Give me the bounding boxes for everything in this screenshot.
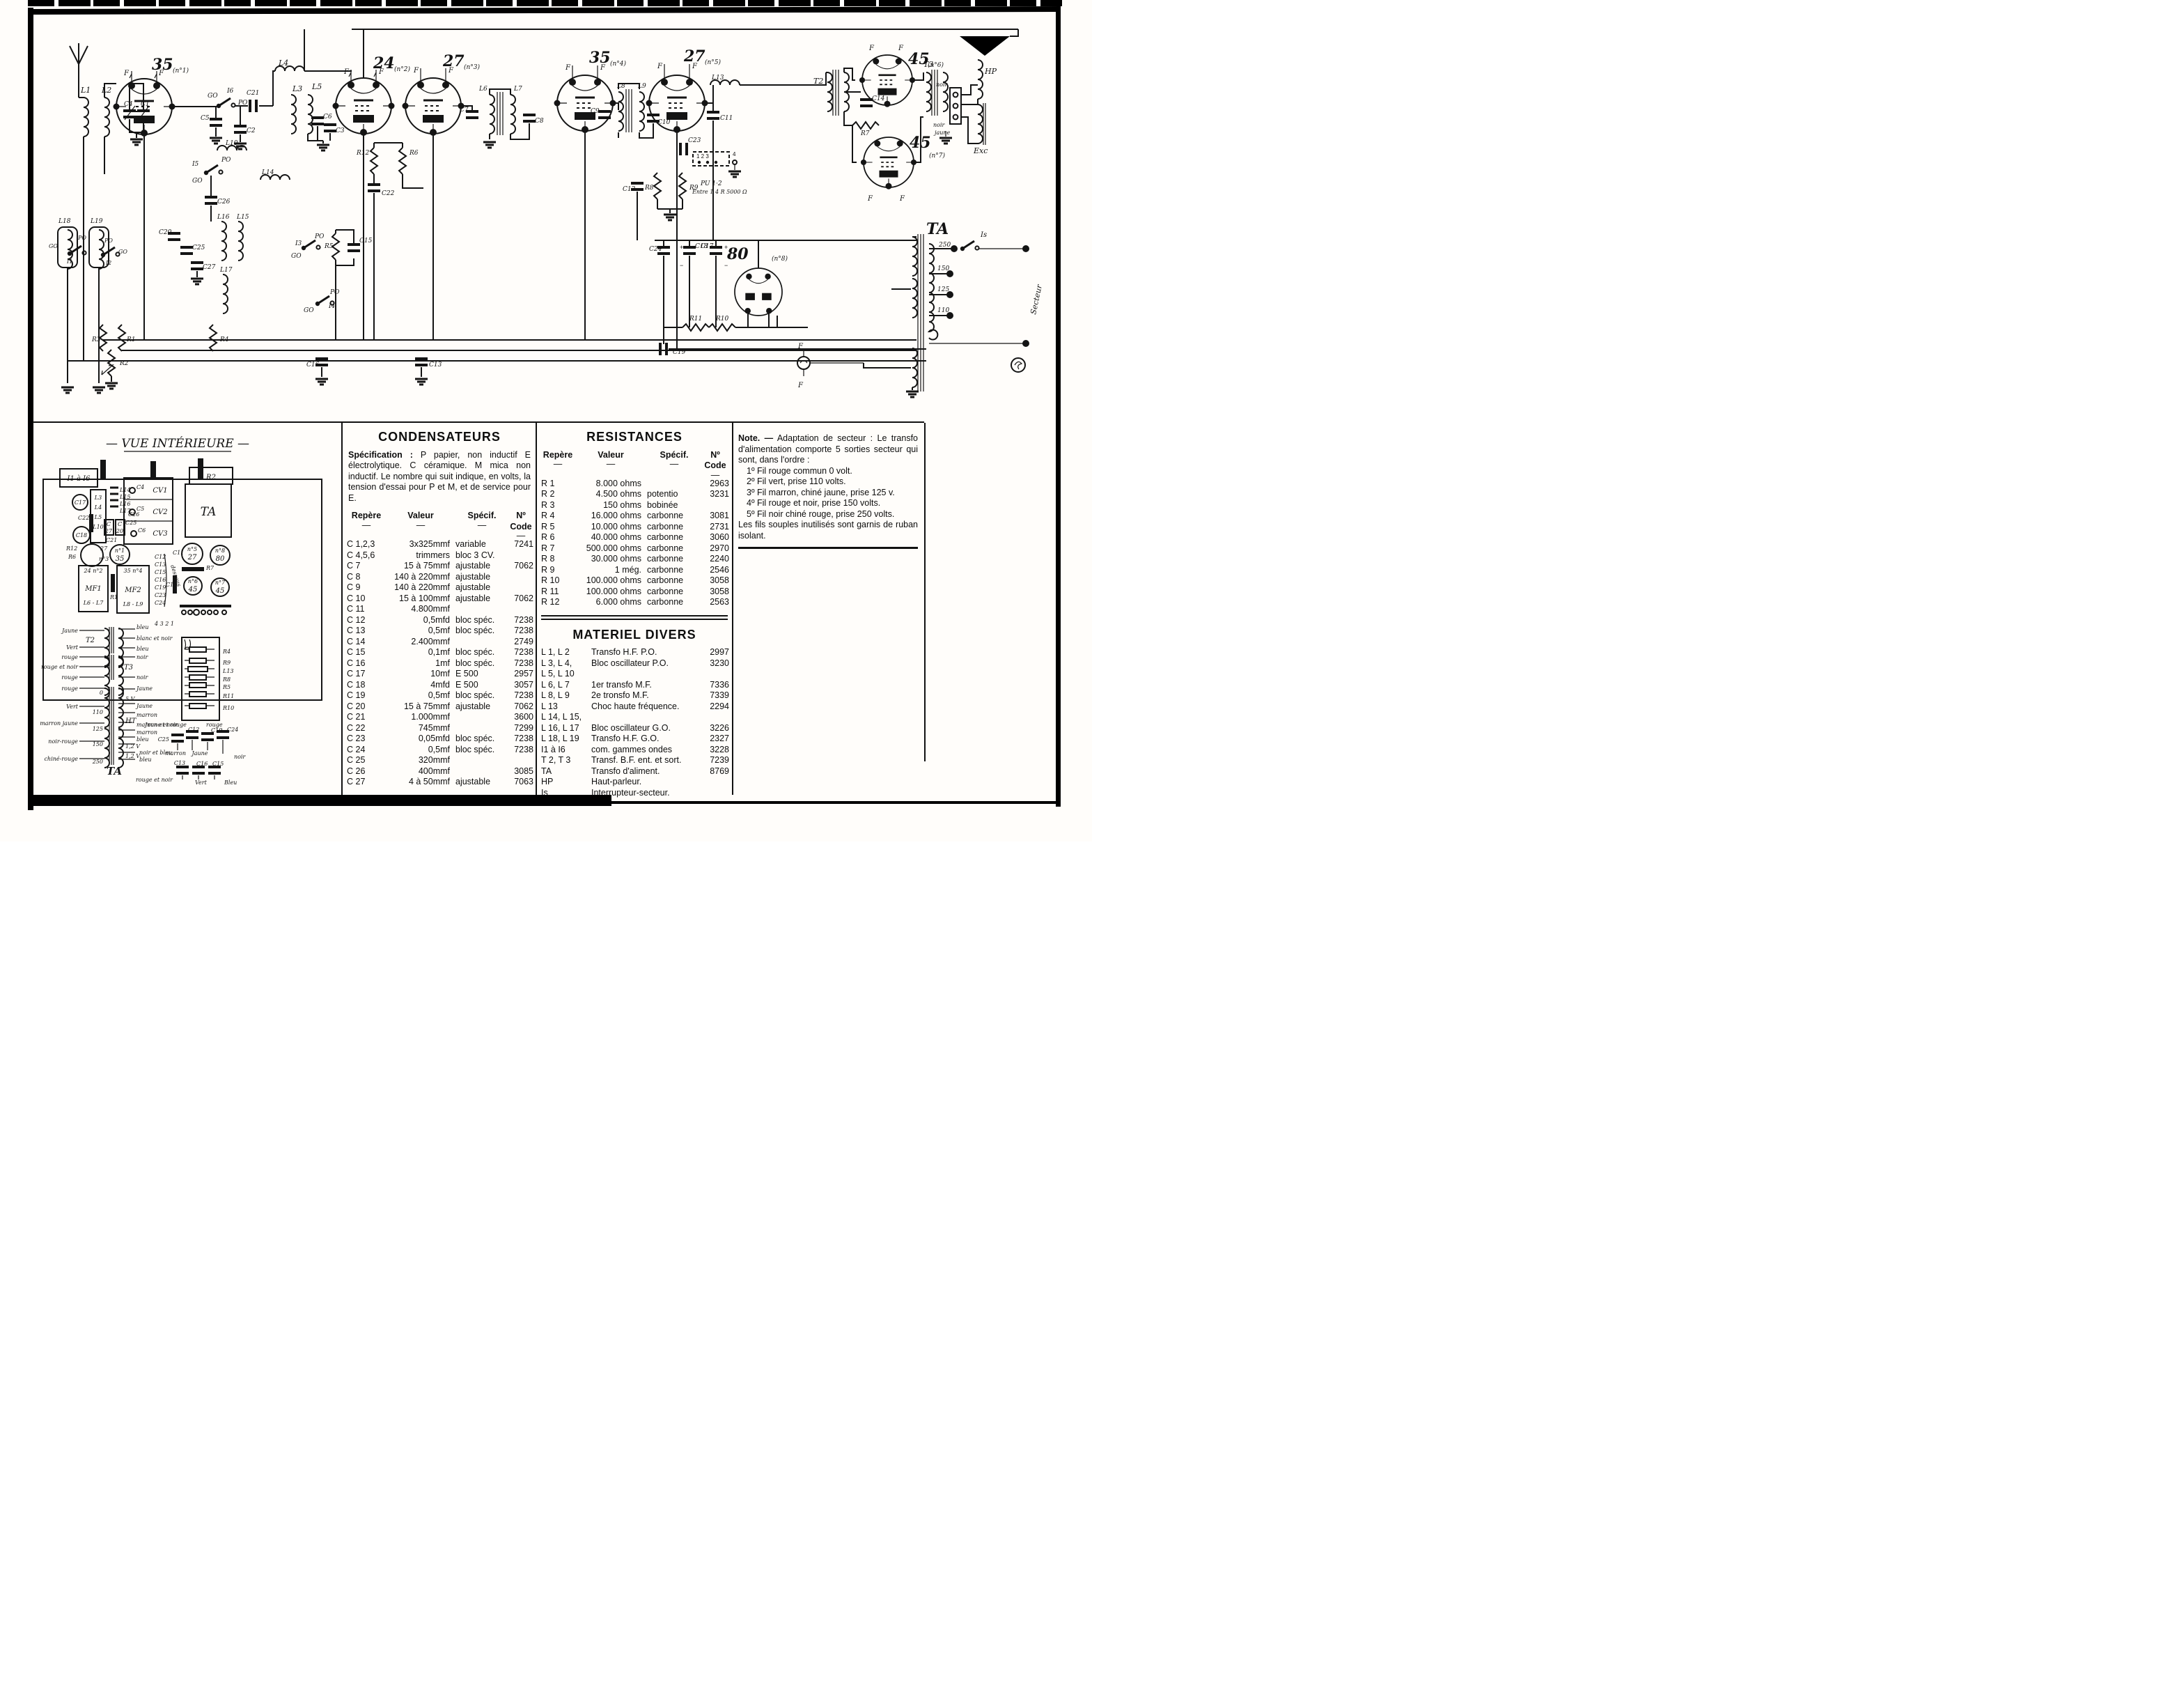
MF2-coils: L8 - L9 xyxy=(123,601,143,607)
switch-I3 xyxy=(302,240,320,250)
materiel-title: MATERIEL DIVERS xyxy=(541,630,728,641)
table-cell: Transf. B.F. ent. et sort. xyxy=(591,755,701,766)
table-cell: carbonne xyxy=(647,587,701,598)
table-row: T 2, T 3Transf. B.F. ent. et sort.7239 xyxy=(541,755,728,766)
table-cell: 7239 xyxy=(701,755,729,766)
table-cell: bloc spéc. xyxy=(455,626,508,637)
board-R10: R10 xyxy=(222,705,234,711)
note-item-3: 3º Fil marron, chiné jaune, prise 125 v. xyxy=(738,488,918,499)
column-divider-1 xyxy=(341,423,343,795)
ground xyxy=(210,138,222,144)
table-cell: carbonne xyxy=(647,543,701,554)
resistor-R9-label: R9 xyxy=(689,185,699,192)
table-cell: bloc spéc. xyxy=(455,615,508,626)
L5-label: L5 xyxy=(94,514,102,520)
coil-L10-label: L10 xyxy=(225,140,238,147)
table-cell xyxy=(591,712,701,723)
cap-C11 xyxy=(707,111,719,120)
switch-I1-label: I1 xyxy=(66,258,72,265)
cap-C3-label: C3 xyxy=(336,127,345,134)
cap-C19 xyxy=(659,343,668,355)
table-cell: 3081 xyxy=(701,511,729,522)
tap-150: 150 xyxy=(93,741,103,747)
spec-bold: Spécification : xyxy=(348,450,413,460)
condensateurs-panel: CONDENSATEURS Spécification : P papier, … xyxy=(347,428,532,788)
filament-label: F xyxy=(378,68,384,76)
header-dash: — xyxy=(508,532,533,539)
transformer-T3-primary xyxy=(926,72,931,111)
TA-big-label: TA xyxy=(107,765,122,777)
wire-marron-jaune: marron jaune xyxy=(40,720,78,727)
table-cell: 3231 xyxy=(701,489,729,500)
table-row: C 25320mmf xyxy=(347,755,532,766)
table-cell: 3060 xyxy=(701,532,729,543)
header-dash: — xyxy=(647,460,701,467)
table-row: L 3, L 4,Bloc oscillateur P.O.3230 xyxy=(541,658,728,669)
R6-label: R6 xyxy=(68,554,76,560)
cap-C8-label: C8 xyxy=(535,118,544,125)
filament-label: F xyxy=(797,382,804,389)
coil-L14-label: L14 xyxy=(261,169,274,176)
table-cell: 3228 xyxy=(701,745,729,756)
table-cell: 0,5mfd xyxy=(386,615,455,626)
table-cell: 320mmf xyxy=(386,755,455,766)
table-cell: R 3 xyxy=(541,500,575,511)
C22-label: C22 xyxy=(78,515,89,521)
header-code: Nº Code xyxy=(701,450,729,472)
wire-bleu: bleu xyxy=(136,646,149,652)
board-R9: R9 xyxy=(222,660,231,666)
board-L13: L13 xyxy=(222,668,234,674)
ground xyxy=(130,139,143,145)
table-cell: 3057 xyxy=(508,680,533,691)
note-dash: — xyxy=(765,433,774,443)
table-cell: ajustable xyxy=(455,572,508,583)
cap-C5-label: C5 xyxy=(201,115,210,122)
table-cell: C 8 xyxy=(347,572,386,583)
table-cell: 10.000 ohms xyxy=(575,522,647,533)
table-row: R 10100.000 ohmscarbonne3058 xyxy=(541,575,728,587)
tap-0: 0 xyxy=(100,690,103,696)
table-cell: Transfo H.F. P.O. xyxy=(591,647,701,658)
table-cell: 3230 xyxy=(701,658,729,669)
table-cell: carbonne xyxy=(647,575,701,587)
note-rule xyxy=(738,547,918,549)
table-row: R 640.000 ohmscarbonne3060 xyxy=(541,532,728,543)
cap-C27 xyxy=(191,261,203,270)
cap-C3 xyxy=(324,123,336,132)
note-item-2: 2º Fil vert, prise 110 volts. xyxy=(738,476,918,488)
transformer-T2-primary xyxy=(827,72,832,111)
switch-I6-label: I6 xyxy=(226,88,234,95)
table-cell: I1 à I6 xyxy=(541,745,591,756)
transformer-TA-label: TA xyxy=(926,220,949,238)
table-cell: Is xyxy=(541,788,591,799)
wire-jaune-et-rouge: Jaune et rouge xyxy=(143,722,187,728)
R7-label: R7 xyxy=(205,565,214,571)
speaker-cone-icon xyxy=(960,36,1010,56)
table-cell xyxy=(508,582,533,594)
po-label: PO xyxy=(314,233,325,240)
wire-noir-label: noir xyxy=(936,82,949,88)
table-cell xyxy=(508,550,533,561)
socket-n6-type: 45 xyxy=(188,586,198,594)
filament-label: F xyxy=(600,64,606,72)
switch-bank-label: I1 à I6 xyxy=(67,475,91,483)
filament-label: F xyxy=(868,45,875,52)
tube-27-n3-label: 27 xyxy=(442,52,465,70)
table-cell: 1 még. xyxy=(575,565,647,576)
MF1-tube-tag: 24 n°2 xyxy=(84,568,103,574)
table-row: C 274 à 50mmfajustable7063 xyxy=(347,777,532,788)
wire-bleu: bleu xyxy=(136,736,149,743)
table-cell: 7336 xyxy=(701,680,729,691)
ground xyxy=(483,142,496,148)
table-cell: C 18 xyxy=(347,680,386,691)
table-cell: R 10 xyxy=(541,575,575,587)
section-divider xyxy=(541,615,728,620)
cap-C13-label: C13 xyxy=(174,760,185,766)
table-cell: C 23 xyxy=(347,734,386,745)
socket-n3-type: 27 xyxy=(100,545,108,552)
table-cell: 2546 xyxy=(701,565,729,576)
table-cell: com. gammes ondes xyxy=(591,745,701,756)
go-label: GO xyxy=(192,178,203,185)
tap-1-2v: 1,2 V xyxy=(125,753,141,759)
cap-C26 xyxy=(205,196,217,205)
wire-rouge: rouge xyxy=(61,654,78,660)
table-cell: 150 ohms xyxy=(575,500,647,511)
po-label: PO xyxy=(329,289,340,296)
cap-C22-label: C22 xyxy=(382,190,395,197)
table-cell: C 1,2,3 xyxy=(347,539,386,550)
coil-L19-label: L19 xyxy=(90,218,103,225)
cap-C16-label: C16 xyxy=(306,362,320,369)
table-cell xyxy=(701,788,729,799)
table-row: C 1710mfE 5002957 xyxy=(347,669,532,680)
coil-L8 xyxy=(618,92,623,131)
table-cell: L 3, L 4, xyxy=(541,658,591,669)
table-row: C 120,5mfdbloc spéc.7238 xyxy=(347,615,532,626)
table-cell: 2963 xyxy=(701,479,729,490)
table-row: C 114.800mmf xyxy=(347,604,532,615)
wire-blanc-et-noir: blanc et noir xyxy=(136,635,173,642)
cap-C13 xyxy=(415,357,428,366)
switch-I5-label: I5 xyxy=(192,161,199,168)
tap-250-label: 250 xyxy=(938,242,951,249)
table-row: C 240,5mfbloc spéc.7238 xyxy=(347,745,532,756)
materiel-rows: L 1, L 2Transfo H.F. P.O.2997L 3, L 4,Bl… xyxy=(541,647,728,798)
table-cell: C 4,5,6 xyxy=(347,550,386,561)
po-label: PO xyxy=(104,238,113,244)
table-cell: 7062 xyxy=(508,594,533,605)
table-row: C 22745mmf7299 xyxy=(347,723,532,734)
table-cell: 0,1mf xyxy=(386,647,455,658)
L10-label: L10 xyxy=(92,524,104,530)
transformer-T2-label: T2 xyxy=(813,77,823,86)
table-cell: 4 à 50mmf xyxy=(386,777,455,788)
ground xyxy=(906,391,919,397)
wire-vert: Vert xyxy=(66,644,79,651)
cap-C19-label: C19 xyxy=(211,727,222,734)
tube-80-n8-label: 80 xyxy=(726,245,749,263)
table-cell: HP xyxy=(541,777,591,788)
cap-C11-label: C11 xyxy=(720,115,733,122)
table-cell: R 7 xyxy=(541,543,575,554)
wire-rouge: rouge xyxy=(61,685,78,692)
switch-Is xyxy=(960,241,979,251)
filament-label: F xyxy=(448,67,454,75)
table-cell: R 12 xyxy=(541,597,575,608)
chassis-top-view: — VUE INTÉRIEURE — I1 à I6 R2 TA CV1 CV2… xyxy=(33,423,341,796)
table-cell: 4.800mmf xyxy=(386,604,455,615)
table-cell: 8769 xyxy=(701,766,729,777)
pu-contact4-label: 4 xyxy=(733,151,736,157)
cap-C23 xyxy=(679,143,688,155)
wire-bleu: bleu xyxy=(136,624,149,630)
resistor-R12 xyxy=(370,148,377,174)
table-row: R 91 még.carbonne2546 xyxy=(541,565,728,576)
tube-24-n2-num: (n°2) xyxy=(394,65,411,73)
frame-bottom-thin xyxy=(611,801,1061,804)
cap-C26-label: C26 xyxy=(217,199,231,205)
wire-marron: marron xyxy=(165,750,186,757)
resistor-R6 xyxy=(399,148,406,174)
cap-C21 xyxy=(249,100,258,112)
ground xyxy=(93,387,105,393)
cap-C20-label: C20 xyxy=(159,229,172,236)
TA-secondary-coil2 xyxy=(118,729,123,768)
cap-C18 xyxy=(683,246,696,255)
cap-C16-label: C16 xyxy=(196,761,208,767)
note-outro: Les fils souples inutilisés sont garnis … xyxy=(738,520,918,541)
table-cell: 2731 xyxy=(701,522,729,533)
table-cell xyxy=(591,669,701,680)
ground xyxy=(317,145,329,150)
ground xyxy=(939,138,952,144)
cap-C25-label: C25 xyxy=(158,736,169,743)
table-cell: 2294 xyxy=(701,701,729,713)
table-cell: L 13 xyxy=(541,701,591,713)
table-row: C 9140 à 220mmfajustable xyxy=(347,582,532,594)
circuit-schematic: L1 L2 C4 C1 35 (n°1) F F GO I6 PO C21 C5… xyxy=(0,0,1092,421)
cap-C15-label: C15 xyxy=(359,238,373,245)
wire-jaune-label: jaune xyxy=(933,130,951,136)
table-cell: R 11 xyxy=(541,587,575,598)
MF2-tube-tag: 35 n°4 xyxy=(124,568,143,574)
wire-rouge: rouge xyxy=(61,674,78,681)
table-cell: 3600 xyxy=(508,712,533,723)
resistances-rows: R 18.000 ohms2963R 24.500 ohmspotentio32… xyxy=(541,479,728,608)
table-row: C 184mfdE 5003057 xyxy=(347,680,532,691)
tap-250: 250 xyxy=(92,759,103,765)
socket-n1-num: n°1 xyxy=(115,548,125,554)
table-cell: bloc 3 CV. xyxy=(455,550,508,561)
table-cell: 2997 xyxy=(701,647,729,658)
wire-vert: Vert xyxy=(66,704,79,710)
filament-label: F xyxy=(692,63,698,70)
cap-C9 xyxy=(598,110,611,119)
coil-L15-label: L15 xyxy=(236,214,249,221)
resistor-R5-label: R5 xyxy=(324,243,334,250)
L3-label: L3 xyxy=(94,495,102,501)
table-row: C 150,1mfbloc spéc.7238 xyxy=(347,647,532,658)
board-R5: R5 xyxy=(222,684,231,690)
table-cell: Interrupteur-secteur. xyxy=(591,788,701,799)
cap-C23-label: C23 xyxy=(688,137,701,144)
table-cell: carbonne xyxy=(647,522,701,533)
table-cell: 3085 xyxy=(508,766,533,777)
table-cell xyxy=(701,712,729,723)
switch-I4-label: I4 xyxy=(328,303,336,310)
table-cell: variable xyxy=(455,539,508,550)
header-dash: — xyxy=(701,472,729,479)
socket-n7-num: n°7 xyxy=(215,580,226,586)
speaker-terminal-block xyxy=(950,88,961,124)
list-C19: C19 xyxy=(155,584,166,591)
table-row: C 130,5mfbloc spéc.7238 xyxy=(347,626,532,637)
header-code: Nº Code xyxy=(508,511,533,532)
wire-bleu: bleu xyxy=(139,757,152,763)
cap-C6 xyxy=(311,116,324,125)
table-row: C 211.000mmf3600 xyxy=(347,712,532,723)
L14-label: L14 xyxy=(119,487,131,493)
excitation-coil xyxy=(978,104,983,144)
coil-L2 xyxy=(104,98,109,137)
table-cell: 3226 xyxy=(701,723,729,734)
table-cell: 1.000mmf xyxy=(386,712,455,723)
resistor-R3-label: R3 xyxy=(91,336,101,343)
tube-27-n3-num: (n°3) xyxy=(464,63,481,71)
wire-noir-label: noir xyxy=(933,122,946,128)
cap-C5 xyxy=(210,118,222,127)
pickup-note: Entre 1 4 R 5000 Ω xyxy=(692,189,747,195)
table-cell: Transfo H.F. G.O. xyxy=(591,734,701,745)
C20-box-label: C xyxy=(118,521,122,527)
table-cell: ajustable xyxy=(455,582,508,594)
table-cell: C 13 xyxy=(347,626,386,637)
table-cell: C 21 xyxy=(347,712,386,723)
table-row: C 8140 à 220mmfajustable xyxy=(347,572,532,583)
table-row: C 161mfbloc spéc.7238 xyxy=(347,658,532,669)
coil-L1-label: L1 xyxy=(80,86,91,95)
table-cell: 4mfd xyxy=(386,680,455,691)
table-cell: R 1 xyxy=(541,479,575,490)
table-cell: 4.500 ohms xyxy=(575,489,647,500)
terminal-strip xyxy=(182,610,226,615)
table-cell: bloc spéc. xyxy=(455,734,508,745)
coil-L6 xyxy=(490,95,494,134)
table-cell: bobinée xyxy=(647,500,701,511)
table-cell xyxy=(508,572,533,583)
note-intro: Note. — Adaptation de secteur : Le trans… xyxy=(738,433,918,466)
condensateurs-rows: C 1,2,33x325mmfvariable7241C 4,5,6trimme… xyxy=(347,539,532,788)
header-dash: — xyxy=(541,460,575,467)
wire-rouge-et-noir: rouge et noir xyxy=(41,664,79,670)
table-row: C 1,2,33x325mmfvariable7241 xyxy=(347,539,532,550)
table-cell: 40.000 ohms xyxy=(575,532,647,543)
cap-C9-label: C9 xyxy=(591,108,600,115)
MF1-coils: L6 - L7 xyxy=(83,600,104,606)
table-cell: L 16, L 17 xyxy=(541,723,591,734)
table-cell: C 16 xyxy=(347,658,386,669)
cap-C8 xyxy=(523,114,536,123)
socket-n7-type: 45 xyxy=(215,587,225,595)
ground xyxy=(191,279,203,284)
filament-label: F xyxy=(898,45,904,52)
TA-primary-coil2 xyxy=(104,729,109,768)
table-cell: trimmers xyxy=(386,550,455,561)
wire-jaune: Jaune xyxy=(135,703,153,709)
coil-L3-label: L3 xyxy=(292,84,302,93)
resistor-R7-label: R7 xyxy=(860,130,870,137)
cap-C12-label: C12 xyxy=(188,727,199,733)
gang-digits: 4 3 2 1 xyxy=(154,621,174,627)
speaker-HP-label: HP xyxy=(984,67,997,76)
wire-jaune: Jaune xyxy=(135,685,153,692)
tube-27-n5-num: (n°5) xyxy=(705,59,721,66)
note-item-4: 4º Fil rouge et noir, prise 150 volts. xyxy=(738,498,918,509)
table-cell xyxy=(647,479,701,490)
CV1-label: CV1 xyxy=(153,487,167,495)
tube-35-n4 xyxy=(554,75,616,133)
table-cell: 140 à 220mmf xyxy=(386,582,455,594)
table-cell: C 10 xyxy=(347,594,386,605)
table-row: L 1, L 2Transfo H.F. P.O.2997 xyxy=(541,647,728,658)
table-row: C 26400mmf3085 xyxy=(347,766,532,777)
underside-cap-list: C12 C13 C15 C16 C19 C23 C24 dessous xyxy=(155,554,182,607)
table-cell: 7063 xyxy=(508,777,533,788)
resistor-R8 xyxy=(654,173,661,199)
coil-L1 xyxy=(84,98,88,137)
table-row: L 13Choc haute fréquence.2294 xyxy=(541,701,728,713)
table-cell: bloc spéc. xyxy=(455,658,508,669)
table-cell: 1er transfo M.F. xyxy=(591,680,701,691)
table-cell: carbonne xyxy=(647,532,701,543)
table-cell: C 15 xyxy=(347,647,386,658)
tube-45-n7-num: (n°7) xyxy=(929,152,946,160)
coil-L17-label: L17 xyxy=(219,267,233,274)
tap-110: 110 xyxy=(93,709,103,715)
excitation-label: Exc xyxy=(973,146,988,155)
table-row: C 142.400mmf2749 xyxy=(347,637,532,648)
T2-coil-left xyxy=(104,628,109,667)
C27-box-label: C xyxy=(107,521,111,527)
table-cell: 7062 xyxy=(508,701,533,713)
table-cell: 16.000 ohms xyxy=(575,511,647,522)
table-row: L 6, L 71er transfo M.F.7336 xyxy=(541,680,728,691)
header-dash: — xyxy=(386,522,455,529)
T3-label: T3 xyxy=(124,664,133,672)
table-cell: 7238 xyxy=(508,615,533,626)
table-cell xyxy=(701,777,729,788)
go-label: GO xyxy=(49,243,58,249)
table-cell: C 11 xyxy=(347,604,386,615)
wire-jaune: Jaune xyxy=(61,628,78,634)
board-R8: R8 xyxy=(222,676,231,683)
cap-C22 xyxy=(368,183,380,192)
C17-label: C17 xyxy=(75,499,86,506)
coil-L5-label: L5 xyxy=(311,82,322,91)
tube-80-n8-num: (n°8) xyxy=(772,255,788,263)
condensateurs-title: CONDENSATEURS xyxy=(347,432,532,443)
condensateurs-spec: Spécification : P papier, non inductif E… xyxy=(348,450,531,504)
table-cell: 15 à 75mmf xyxy=(386,561,455,572)
go-label: GO xyxy=(208,93,218,100)
C4-trimmer-label: C4 xyxy=(136,484,144,490)
table-row: R 126.000 ohmscarbonne2563 xyxy=(541,597,728,608)
table-cell: C 26 xyxy=(347,766,386,777)
